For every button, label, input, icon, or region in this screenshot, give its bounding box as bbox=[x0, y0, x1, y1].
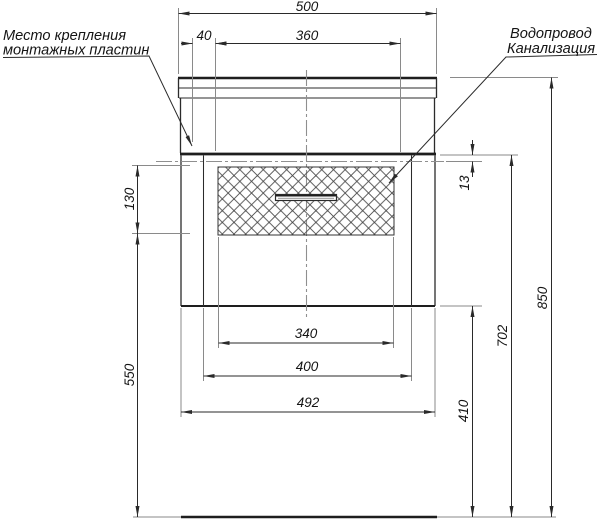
mounting-label-line2: монтажных пластин bbox=[3, 43, 149, 59]
drawing-canvas: 500 40 360 130 550 13 340 400 492 410 70… bbox=[0, 0, 600, 522]
dim-label-500: 500 bbox=[296, 0, 319, 14]
mounting-plates-label: Место крепления монтажных пластин bbox=[3, 28, 149, 59]
utilities-leader bbox=[389, 55, 597, 184]
utilities-label-line1: Водопровод bbox=[510, 26, 592, 42]
dimension-lines bbox=[138, 14, 552, 518]
utilities-label-line2: Канализация bbox=[507, 41, 595, 57]
dim-label-400: 400 bbox=[296, 359, 319, 374]
drawer-handle bbox=[276, 195, 337, 201]
dim-label-850: 850 bbox=[535, 286, 550, 309]
dim-label-130: 130 bbox=[122, 187, 137, 210]
dim-label-360: 360 bbox=[296, 28, 319, 43]
dim-label-13: 13 bbox=[457, 175, 472, 191]
dim-label-492: 492 bbox=[297, 395, 320, 410]
dim-label-40: 40 bbox=[196, 28, 212, 43]
countertop bbox=[178, 78, 437, 154]
vanity-installation-drawing: 500 40 360 130 550 13 340 400 492 410 70… bbox=[0, 0, 600, 522]
dim-label-410: 410 bbox=[456, 399, 471, 422]
dim-label-550: 550 bbox=[122, 363, 137, 386]
dim-label-702: 702 bbox=[495, 324, 510, 347]
mounting-plates-leader bbox=[3, 56, 192, 146]
utilities-label: Водопровод Канализация bbox=[507, 26, 595, 57]
dim-label-340: 340 bbox=[295, 326, 318, 341]
